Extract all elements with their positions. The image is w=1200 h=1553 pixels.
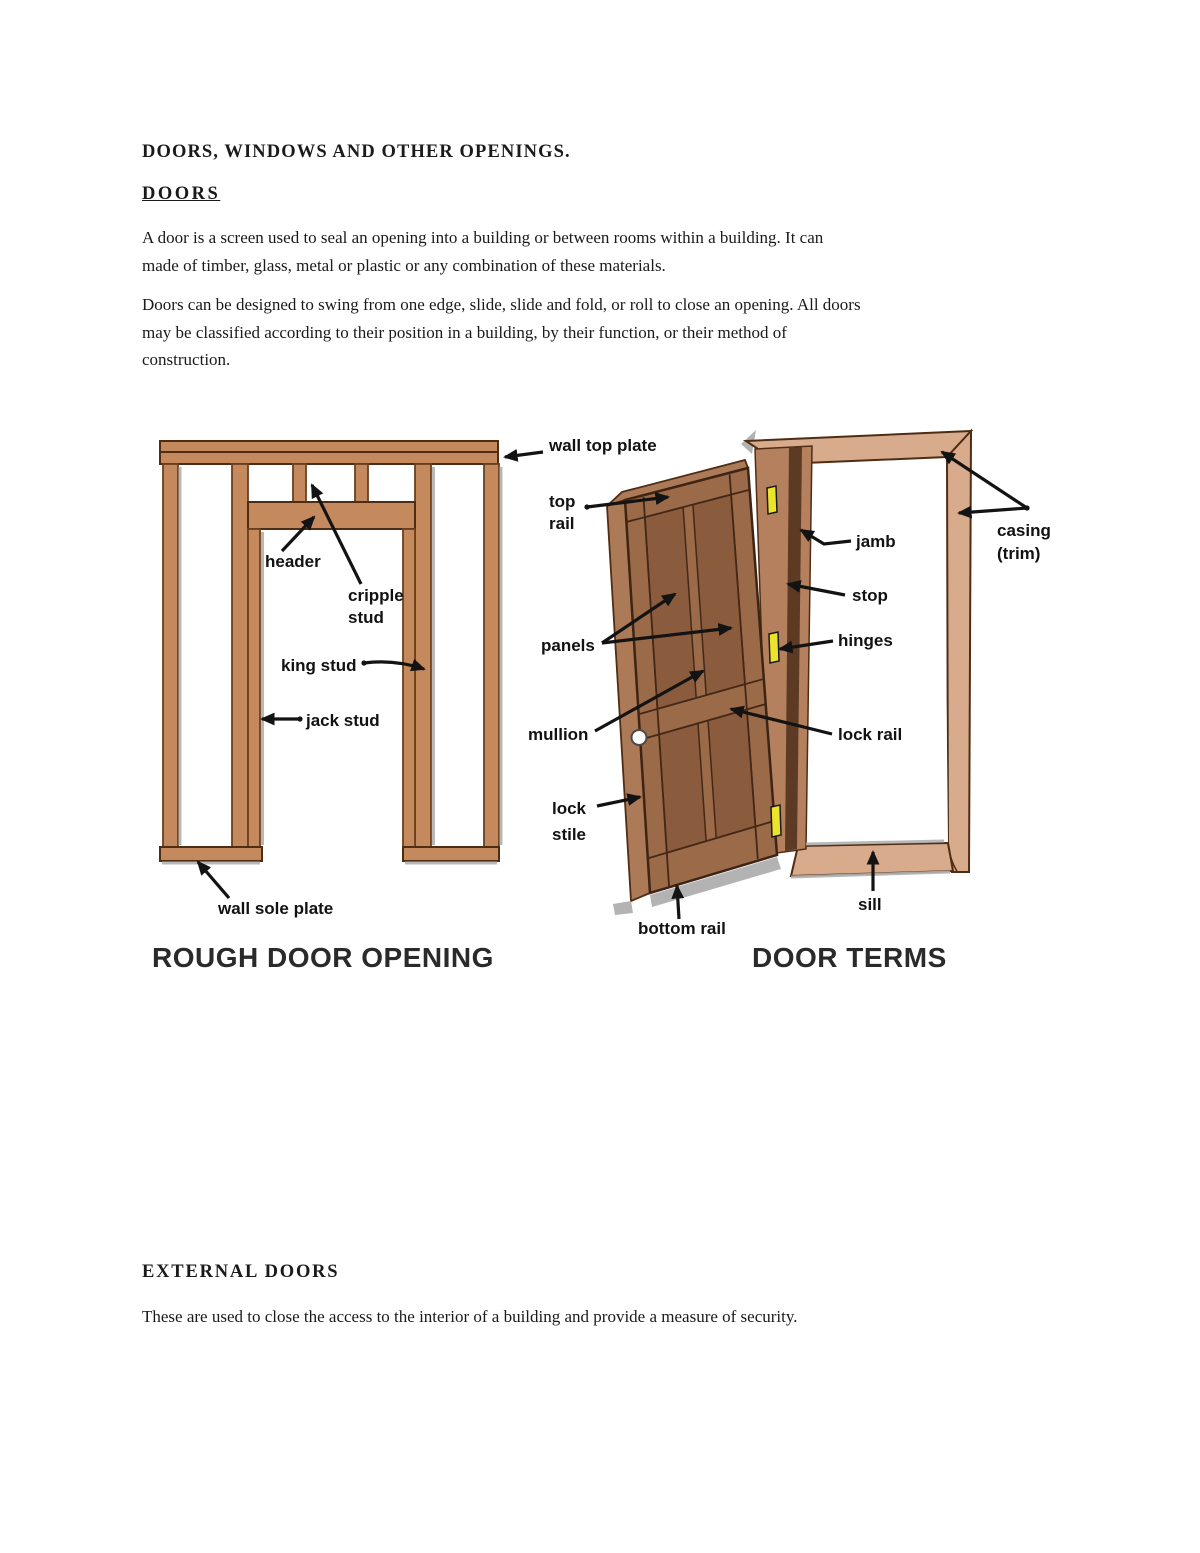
section-heading-external-doors: EXTERNAL DOORS — [142, 1262, 339, 1283]
label-king-stud: king stud — [281, 656, 357, 675]
door-knob — [632, 730, 647, 745]
cripple-stud-2 — [355, 464, 368, 502]
label-mullion: mullion — [528, 725, 588, 744]
label-stop: stop — [852, 586, 888, 605]
label-cripple-stud: cripple — [348, 586, 404, 605]
arrow-dot — [361, 660, 366, 665]
paragraph-line: Doors can be designed to swing from one … — [142, 291, 861, 319]
king-stud-left — [232, 464, 248, 847]
wall-sole-plate-right — [403, 847, 499, 861]
section-heading-doors: DOORS — [142, 184, 220, 205]
wall-top-plate-upper — [160, 441, 498, 452]
arrow-dot — [1024, 505, 1029, 510]
door-terms-diagram — [607, 430, 971, 915]
wall-sole-plate-left — [160, 847, 262, 861]
caption-rough-door-opening: ROUGH DOOR OPENING — [152, 942, 494, 973]
label-lock-rail: lock rail — [838, 725, 902, 744]
label-hinges: hinges — [838, 631, 893, 650]
casing-right — [947, 431, 971, 872]
document-page: DOORS, WINDOWS AND OTHER OPENINGS. DOORS… — [0, 0, 1200, 1553]
label-header: header — [265, 552, 321, 571]
hinge-bottom — [771, 805, 781, 837]
label-lock-stile: stile — [552, 825, 586, 844]
wall-sole-plate-arrow — [198, 862, 229, 898]
jack-stud-left — [248, 529, 260, 847]
paragraph-3: These are used to close the access to th… — [142, 1303, 798, 1331]
label-cripple-stud: stud — [348, 608, 384, 627]
paragraph-line: A door is a screen used to seal an openi… — [142, 224, 823, 252]
door-opening — [806, 459, 948, 848]
jack-stud-right — [403, 529, 415, 847]
arrow-dot — [297, 716, 302, 721]
label-wall-sole-plate: wall sole plate — [217, 899, 333, 918]
label-panels: panels — [541, 636, 595, 655]
label-jack-stud: jack stud — [305, 711, 380, 730]
label-casing: (trim) — [997, 544, 1040, 563]
king-stud-right — [415, 464, 431, 847]
caption-door-terms: DOOR TERMS — [752, 942, 947, 973]
arrow-dot — [584, 504, 589, 509]
door-corner-shadow — [613, 901, 633, 915]
cripple-stud-1 — [293, 464, 306, 502]
paragraph-line: may be classified according to their pos… — [142, 319, 861, 347]
rough-door-opening-diagram — [160, 441, 501, 863]
paragraph-line: made of timber, glass, metal or plastic … — [142, 252, 823, 280]
label-bottom-rail: bottom rail — [638, 919, 726, 938]
label-top-rail: top — [549, 492, 575, 511]
paragraph-line: construction. — [142, 346, 861, 374]
paragraph-2: Doors can be designed to swing from one … — [142, 291, 861, 374]
bottom-rail-arrow — [677, 886, 679, 919]
label-sill: sill — [858, 895, 882, 914]
paragraph-line: These are used to close the access to th… — [142, 1303, 798, 1331]
doors-figure: wall top plate header cripple stud king … — [140, 420, 1100, 990]
wall-top-plate-lower — [160, 452, 498, 464]
label-wall-top-plate: wall top plate — [548, 436, 657, 455]
label-jamb: jamb — [855, 532, 896, 551]
page-title: DOORS, WINDOWS AND OTHER OPENINGS. — [142, 142, 571, 163]
left-end-stud — [163, 464, 178, 847]
label-casing: casing — [997, 521, 1051, 540]
wall-top-plate-arrow — [505, 452, 543, 457]
label-top-rail: rail — [549, 514, 575, 533]
hinge-middle — [769, 632, 779, 663]
label-lock-stile: lock — [552, 799, 587, 818]
paragraph-1: A door is a screen used to seal an openi… — [142, 224, 823, 279]
right-end-stud — [484, 464, 499, 847]
hinge-top — [767, 486, 777, 514]
